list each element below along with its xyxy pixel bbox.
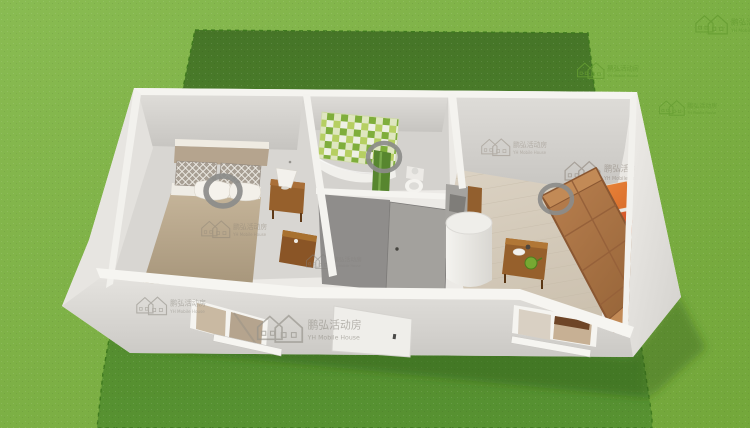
floorplan-3d-render: 鹏弘活动房 YH Mobile House [0,0,750,428]
toilet-paper-roll [412,168,419,175]
heater-top [446,212,492,234]
wall-socket [289,161,292,164]
bedroom [106,95,336,289]
dresser[interactable] [279,230,317,268]
cup [526,245,531,250]
teapot [525,257,537,269]
sink [449,194,466,214]
dresser-item [294,239,298,243]
bathroom-door-handle [395,247,398,250]
plate [513,249,525,256]
scene-svg: 鹏弘活动房 YH Mobile House [0,0,750,428]
lamp-base [281,186,289,189]
throw-pillow-left [194,180,230,200]
toilet-bowl [409,182,419,190]
bathroom [309,96,450,196]
bathroom-door[interactable] [386,202,448,292]
water-heater[interactable] [446,212,492,287]
throw-pillow-right [229,183,261,201]
container-house [62,88,681,357]
